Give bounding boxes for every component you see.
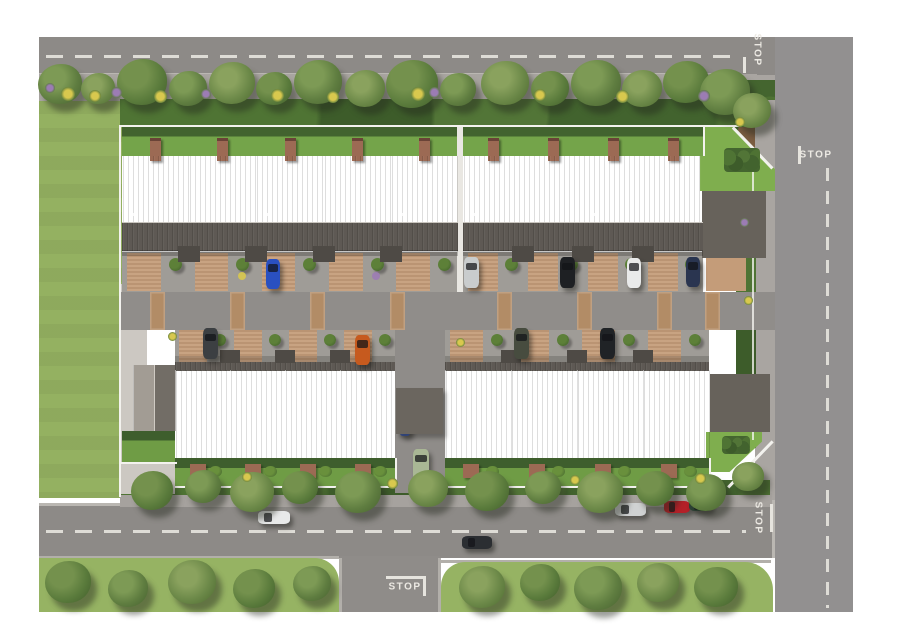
tree <box>622 70 662 107</box>
alley-carport-roof <box>396 388 443 434</box>
stop-bar-bottom-road <box>770 504 773 532</box>
tree <box>577 471 623 513</box>
tree <box>233 569 275 608</box>
car-glass <box>466 263 477 270</box>
entry-porch <box>512 246 534 262</box>
flower-shrub <box>89 90 101 102</box>
tree <box>637 563 679 602</box>
tree <box>230 472 274 512</box>
tree <box>459 566 505 608</box>
flower-shrub <box>570 475 580 485</box>
driveway-pad <box>127 253 161 291</box>
flower-shrub <box>744 296 753 305</box>
tree <box>169 71 207 106</box>
tree <box>440 73 476 106</box>
car-glass <box>264 513 272 523</box>
tree <box>481 61 529 105</box>
lane-paver-band <box>577 292 592 330</box>
tree <box>571 60 621 106</box>
flower-shrub <box>411 87 425 101</box>
flower-shrub <box>735 117 745 127</box>
tree <box>732 462 764 491</box>
tree <box>345 70 385 107</box>
lane-paver-band <box>390 292 405 330</box>
porch-roof-shadow <box>122 250 458 256</box>
scene-layer <box>0 0 900 642</box>
driveway-shrub <box>324 334 336 346</box>
yard-bush <box>374 466 387 477</box>
flower-shrub <box>740 218 749 227</box>
unit-roof <box>643 370 710 458</box>
unit-roof <box>643 156 704 222</box>
car-glass <box>688 262 699 269</box>
car-glass <box>629 263 640 270</box>
sw-offset-unit-yard <box>122 431 175 462</box>
entry-porch <box>313 246 335 262</box>
flower-shrub <box>327 91 339 103</box>
flower-shrub <box>45 83 55 93</box>
tree <box>38 64 82 104</box>
unit-roof <box>175 370 231 458</box>
unit-roof <box>324 156 392 222</box>
roof-skylight <box>263 213 271 216</box>
tree <box>209 62 255 104</box>
car-glass <box>516 334 527 341</box>
car-glass <box>357 340 368 347</box>
car-glass <box>268 264 279 271</box>
entry-porch <box>220 350 240 363</box>
parked-white-car <box>258 511 290 524</box>
driveway-shrub <box>269 334 281 346</box>
yard-bush <box>618 466 631 477</box>
flower-shrub <box>201 89 211 99</box>
flower-shrub <box>387 478 398 489</box>
unit-roof <box>189 156 257 222</box>
flower-shrub <box>111 87 122 98</box>
tree <box>465 471 509 511</box>
fence-sw-patch <box>121 462 177 464</box>
centerline-top-road <box>46 55 742 58</box>
driveway-shrub <box>438 258 451 271</box>
flower-shrub <box>616 90 629 103</box>
flower-shrub <box>168 332 177 341</box>
ne-hedge <box>724 148 760 172</box>
roof-skylight <box>470 213 478 216</box>
tree <box>686 474 726 511</box>
silver-car <box>464 257 479 288</box>
flower-shrub <box>698 90 710 102</box>
stop-marking-side-street: STOP <box>388 582 421 593</box>
stop-bar-side-street-h <box>386 576 424 579</box>
car-glass <box>205 334 216 341</box>
entry-porch <box>572 246 594 262</box>
white-car <box>627 258 641 288</box>
unit-roof <box>523 156 584 222</box>
tree <box>386 60 438 108</box>
tree <box>108 570 148 607</box>
car-glass <box>415 455 427 463</box>
centerline-bottom-road <box>46 530 746 533</box>
tree <box>168 560 216 604</box>
entry-porch <box>245 246 267 262</box>
ne-garage-door <box>706 258 746 291</box>
unit-roof <box>340 370 396 458</box>
black-car-2 <box>600 328 615 359</box>
flower-shrub <box>695 473 706 484</box>
lane-paver-band <box>705 292 720 330</box>
flower-shrub <box>61 87 75 101</box>
entry-porch <box>275 350 295 363</box>
flower-shrub <box>271 89 284 102</box>
moving-dark-car <box>462 536 492 549</box>
tree <box>574 566 622 610</box>
stop-bar-top-road <box>743 57 746 73</box>
centerline-right-road <box>826 168 829 608</box>
stop-marking-right-road: STOP <box>799 150 832 161</box>
unit-roof <box>577 370 644 458</box>
black-car <box>560 257 575 288</box>
dark-gray-car <box>203 328 218 359</box>
tree <box>408 470 448 507</box>
flower-shrub <box>242 472 252 482</box>
flower-shrub <box>429 87 440 98</box>
stop-bar-side-street-v <box>423 576 426 596</box>
parked-silver-car <box>615 503 646 516</box>
tree <box>525 471 561 504</box>
unit-roof <box>511 370 578 458</box>
yard-bush <box>319 466 332 477</box>
lane-paver-band <box>150 292 165 330</box>
entry-porch <box>330 350 350 363</box>
flower-shrub <box>154 90 167 103</box>
entry-porch <box>380 246 402 262</box>
car-glass <box>602 334 613 341</box>
olive-car <box>514 328 529 359</box>
parked-red-car <box>664 501 690 513</box>
se-garage-roof <box>710 374 770 432</box>
stop-marking-bottom-road: STOP <box>753 501 764 534</box>
car-glass <box>621 505 628 515</box>
site-plan-canvas: STOP STOP STOP STOP <box>0 0 900 642</box>
fence-west <box>119 125 121 497</box>
lane-paver-band <box>657 292 672 330</box>
fence-north <box>119 125 739 127</box>
flower-shrub <box>534 89 546 101</box>
ne-garage-roof <box>702 191 766 258</box>
roof-skylight <box>398 213 406 216</box>
flower-accent <box>372 272 380 280</box>
unit-roof <box>230 370 286 458</box>
car-glass <box>468 538 475 548</box>
blue-car <box>266 259 280 289</box>
entry-porch <box>567 350 587 363</box>
tree <box>335 471 381 513</box>
car-glass <box>562 263 573 270</box>
tree <box>185 470 221 503</box>
car-glass <box>669 502 675 511</box>
lane-paver-band <box>310 292 325 330</box>
tree <box>694 567 738 607</box>
lane-paver-band <box>230 292 245 330</box>
entry-porch <box>178 246 200 262</box>
tree <box>131 471 173 510</box>
tree <box>636 471 674 506</box>
entry-porch <box>633 350 653 363</box>
unit-roof <box>285 370 341 458</box>
tree <box>45 561 91 603</box>
se-hedge <box>722 436 750 454</box>
flower-shrub <box>456 338 465 347</box>
roof-skylight <box>129 213 137 216</box>
orange-car <box>355 335 370 365</box>
flower-accent <box>238 272 246 280</box>
lane-paver-band <box>497 292 512 330</box>
sw-offset-unit-roof <box>133 365 176 431</box>
tree <box>293 566 331 601</box>
roof-skylight <box>590 213 598 216</box>
tree <box>520 564 560 601</box>
driveway-shrub <box>379 334 391 346</box>
porch-roof <box>122 222 458 251</box>
unit-roof <box>445 370 512 458</box>
tree <box>282 471 318 504</box>
navy-car <box>686 257 700 287</box>
stop-marking-top-road: STOP <box>752 33 763 66</box>
